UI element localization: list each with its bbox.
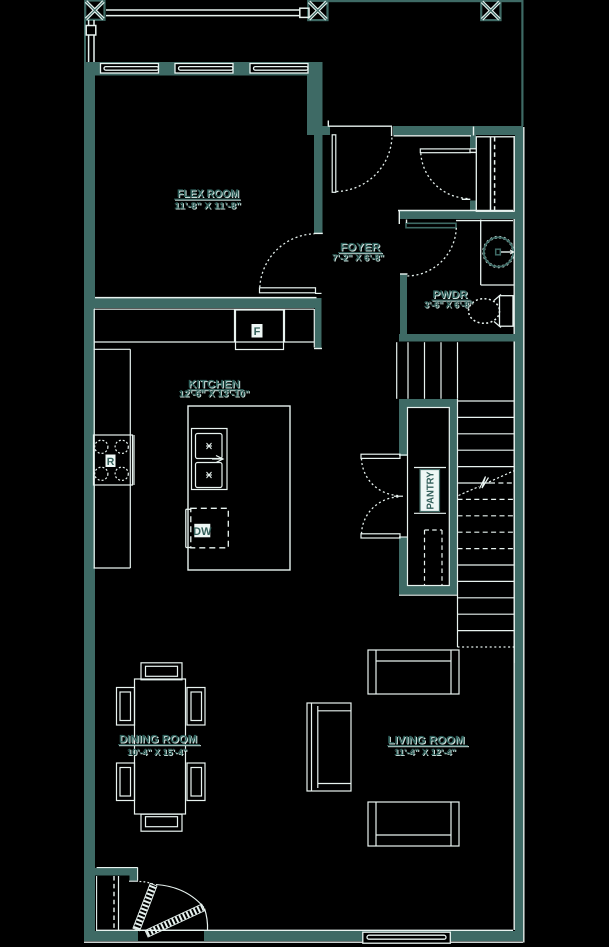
svg-text:FLEX ROOM: FLEX ROOM bbox=[177, 188, 239, 200]
svg-text:12'-6" X 13'-10": 12'-6" X 13'-10" bbox=[179, 389, 250, 399]
svg-text:11'-8" X 11'-8": 11'-8" X 11'-8" bbox=[174, 201, 241, 211]
svg-text:DW: DW bbox=[193, 526, 212, 538]
svg-text:3'-6" X 6'-8": 3'-6" X 6'-8" bbox=[424, 300, 473, 310]
svg-text:F: F bbox=[254, 326, 261, 338]
svg-text:LIVING ROOM: LIVING ROOM bbox=[388, 735, 465, 747]
svg-text:R: R bbox=[107, 456, 115, 468]
svg-text:DINING ROOM: DINING ROOM bbox=[119, 734, 197, 746]
svg-text:PANTRY: PANTRY bbox=[425, 471, 436, 509]
svg-text:10'-4" X 15'-4": 10'-4" X 15'-4" bbox=[127, 747, 187, 757]
svg-text:11'-4" X 12'-4": 11'-4" X 12'-4" bbox=[394, 747, 456, 757]
svg-text:7'-2" X 6'-8": 7'-2" X 6'-8" bbox=[332, 253, 384, 263]
